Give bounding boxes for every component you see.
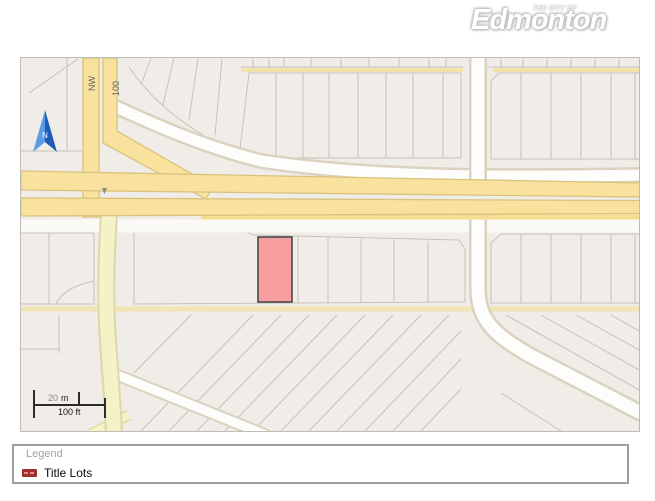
legend-item-title-lots: Title Lots (22, 465, 92, 481)
street-label-100: 100 (111, 81, 121, 96)
map-svg: NW 100 N 20m 100 ft (21, 58, 639, 431)
legend-panel: Legend Title Lots (12, 444, 629, 484)
scale-imperial-label: 100 ft (58, 407, 81, 417)
north-arrow-label: N (42, 131, 48, 140)
logo-pretitle: THE CITY OF (533, 6, 577, 12)
title-lots-swatch-icon (22, 469, 37, 477)
legend-title: Legend (26, 448, 63, 460)
edmonton-logo: Edmonton THE CITY OF (471, 2, 641, 44)
legend-item-label: Title Lots (44, 466, 92, 480)
map-canvas[interactable]: NW 100 N 20m 100 ft (20, 57, 640, 432)
street-label-nw: NW (87, 76, 97, 91)
selected-title-lot[interactable] (258, 237, 292, 302)
